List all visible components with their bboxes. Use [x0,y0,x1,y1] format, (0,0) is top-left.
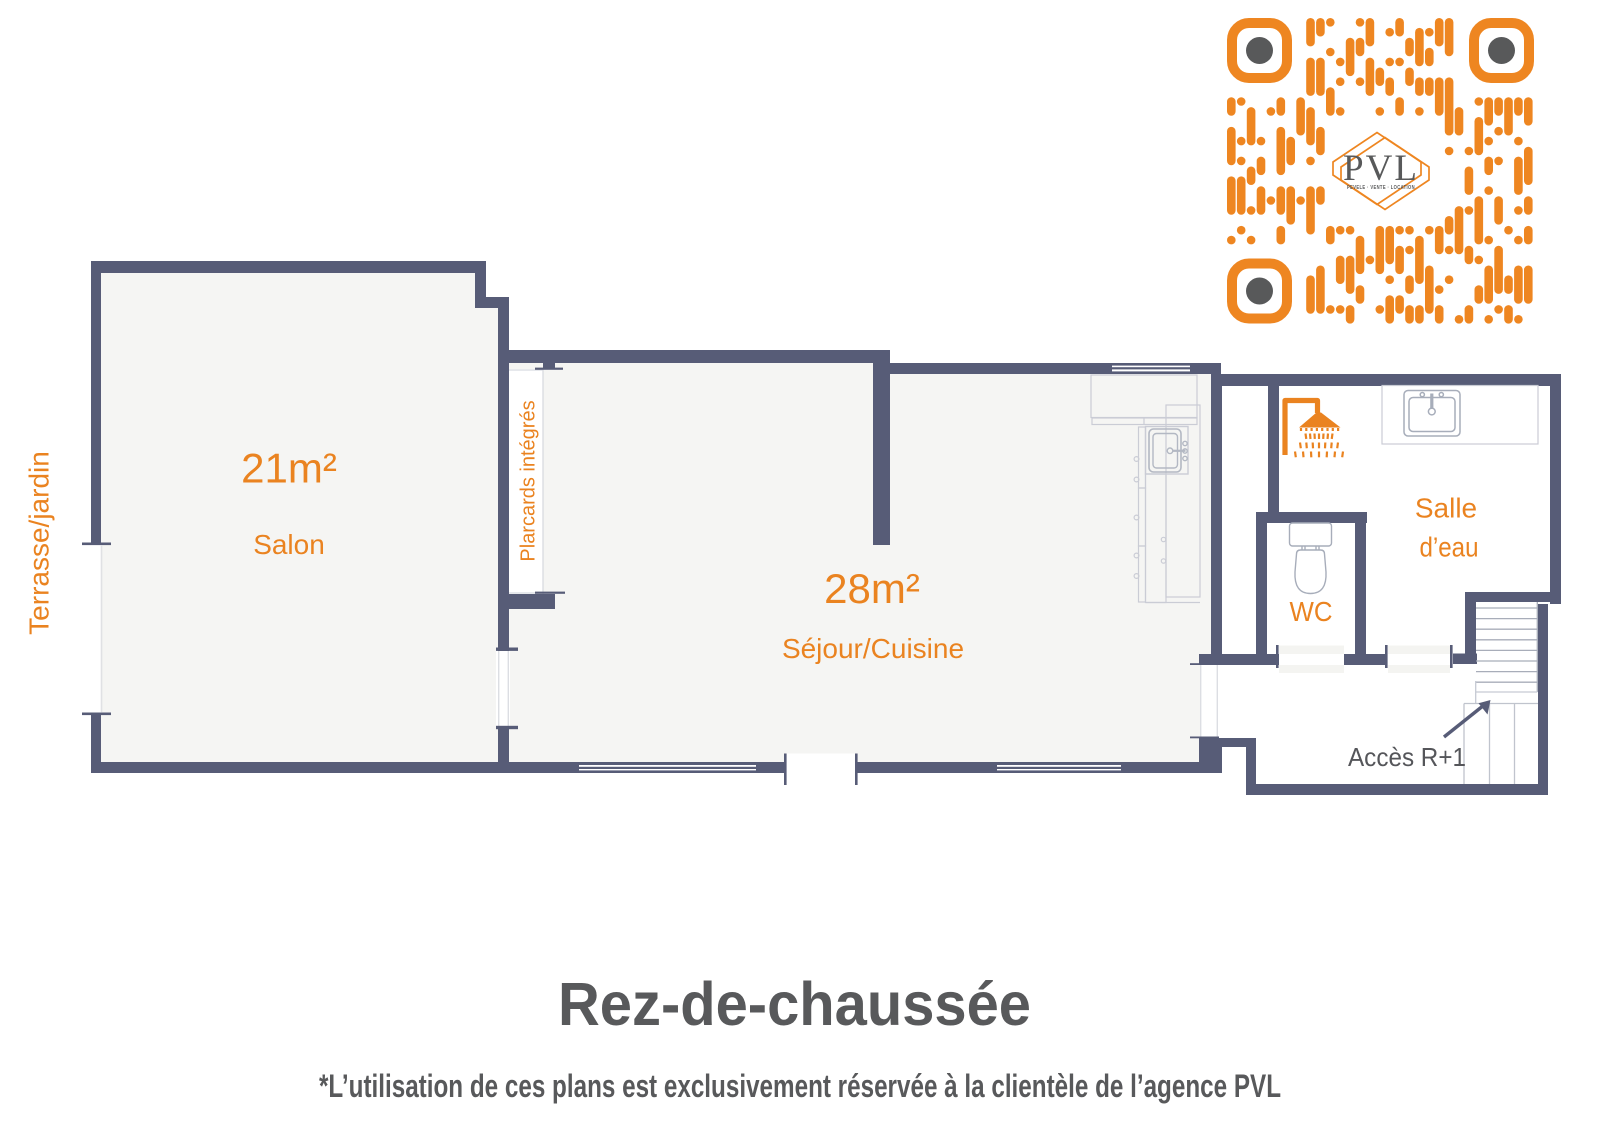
svg-text:Plarcards intégrés: Plarcards intégrés [517,400,539,561]
svg-text:Terrasse/jardin: Terrasse/jardin [23,451,54,635]
svg-text:WC: WC [1290,596,1333,627]
svg-text:21m²: 21m² [241,445,337,492]
svg-text:PVL: PVL [1343,148,1419,189]
svg-text:Salle: Salle [1415,493,1477,524]
svg-text:*L’utilisation de ces plans es: *L’utilisation de ces plans est exclusiv… [319,1068,1281,1104]
svg-text:28m²: 28m² [824,565,920,612]
svg-text:Rez-de-chaussée: Rez-de-chaussée [558,970,1031,1038]
svg-text:PEVELE · VENTE · LOCATION: PEVELE · VENTE · LOCATION [1347,185,1415,191]
svg-text:Accès R+1: Accès R+1 [1348,742,1466,772]
svg-text:Salon: Salon [253,529,325,560]
svg-text:Séjour/Cuisine: Séjour/Cuisine [782,633,964,664]
svg-text:d’eau: d’eau [1420,532,1479,563]
